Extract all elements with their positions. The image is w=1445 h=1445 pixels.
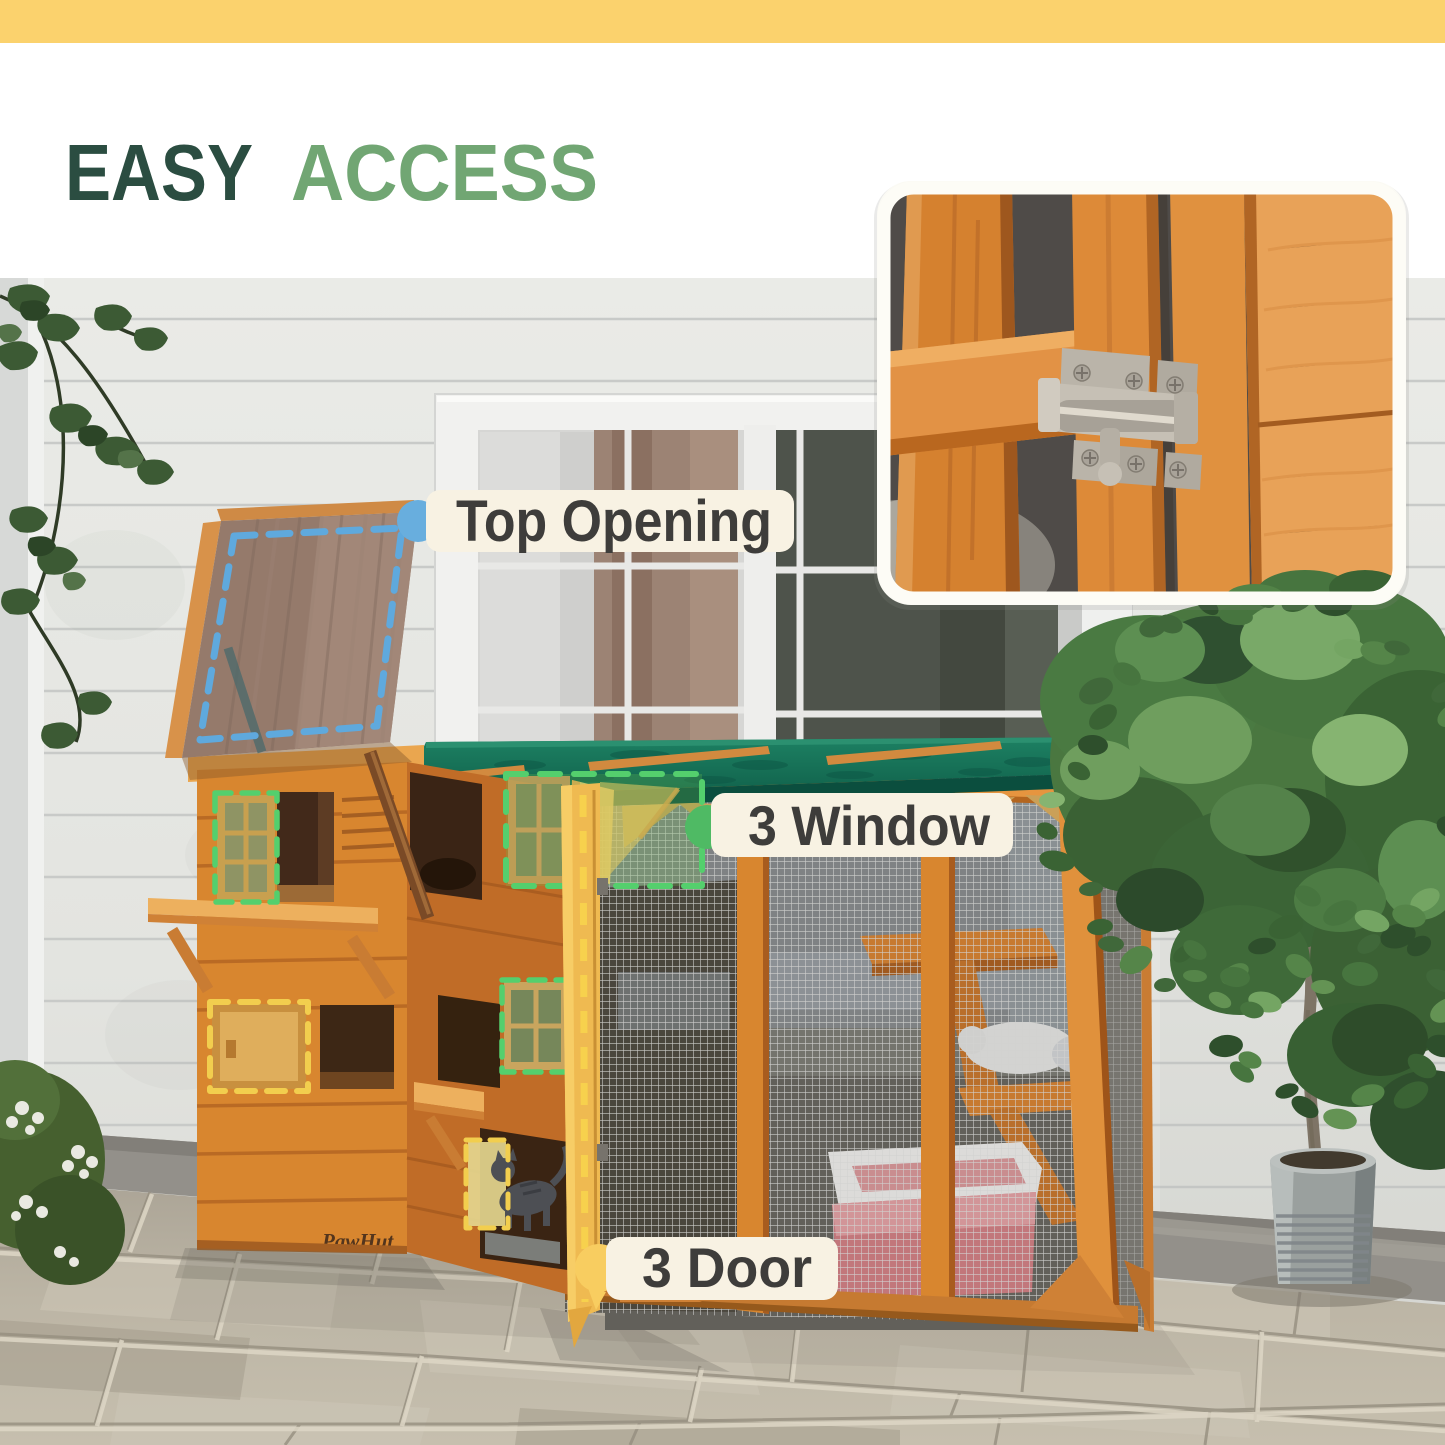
svg-text:EASY: EASY (65, 128, 253, 217)
svg-text:ACCESS: ACCESS (291, 128, 598, 217)
svg-text:Top Opening: Top Opening (456, 489, 772, 554)
svg-text:3 Window: 3 Window (748, 794, 990, 857)
svg-text:3 Door: 3 Door (642, 1236, 812, 1299)
